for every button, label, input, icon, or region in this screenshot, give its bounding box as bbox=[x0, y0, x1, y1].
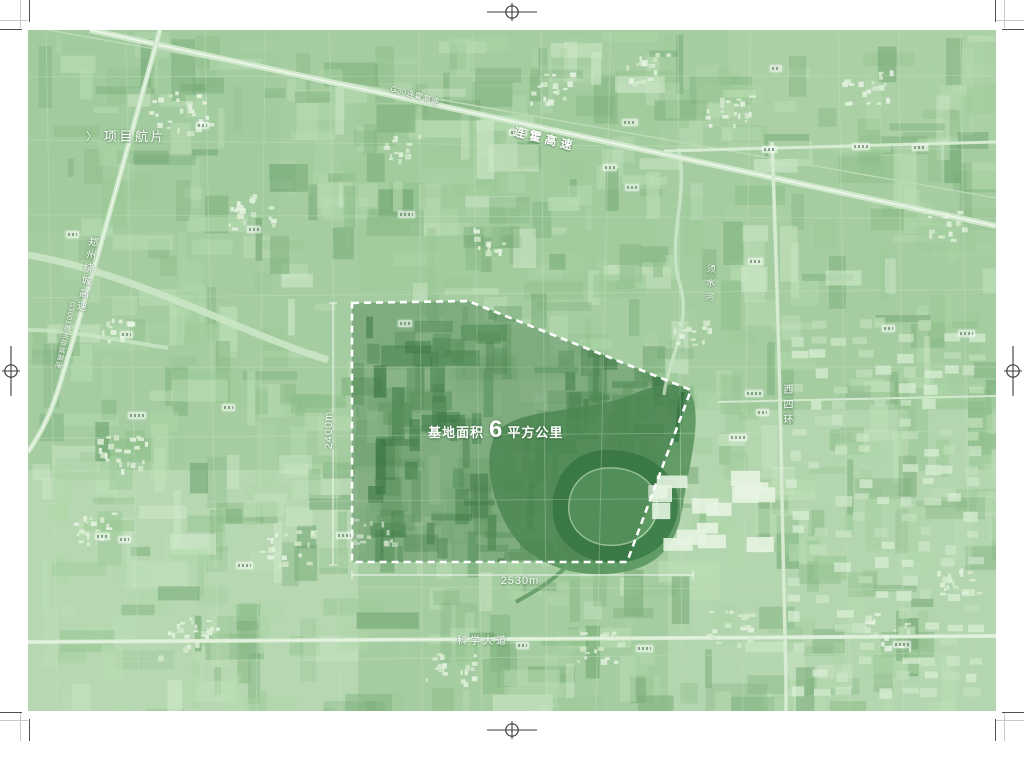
map-label-chip bbox=[247, 226, 261, 233]
map-label-chip bbox=[66, 231, 79, 238]
map-label-chip bbox=[118, 536, 131, 543]
map-label-chip bbox=[398, 211, 415, 218]
dimension-width-label: 2530m bbox=[490, 575, 550, 587]
map-label-chip bbox=[622, 119, 638, 126]
map-label-chip bbox=[762, 146, 777, 153]
map-label-chip bbox=[745, 390, 763, 397]
aerial-map: 〉 项目航片 基地面积 6 平方公里 2400m 2530m 连霍高速 G30连… bbox=[28, 30, 996, 711]
area-label-unit: 平方公里 bbox=[507, 424, 563, 442]
page-title-text: 项目航片 bbox=[104, 126, 166, 145]
map-label-chip bbox=[893, 641, 911, 648]
dimension-height-label: 2400m bbox=[323, 400, 335, 460]
map-label-chip bbox=[236, 562, 253, 569]
map-label-chip bbox=[603, 164, 617, 171]
site-area-label: 基地面积 6 平方公里 bbox=[428, 418, 563, 442]
map-label-chip bbox=[756, 409, 769, 416]
map-label-chip bbox=[222, 404, 235, 411]
river-label-xushui: 须水河 bbox=[703, 264, 718, 307]
map-label-chip bbox=[636, 645, 653, 652]
map-label-chip bbox=[729, 434, 747, 441]
map-label-chip bbox=[770, 65, 782, 72]
chevron-right-icon: 〉 bbox=[86, 128, 97, 144]
map-label-chip bbox=[128, 412, 146, 419]
road-label-science-avenue: 科学大道 bbox=[413, 632, 553, 647]
map-label-chip bbox=[748, 258, 763, 265]
map-label-chip bbox=[95, 533, 110, 540]
map-label-chip bbox=[852, 143, 870, 150]
map-label-chip bbox=[398, 320, 412, 327]
area-value: 6 bbox=[489, 418, 502, 442]
map-label-chip bbox=[625, 184, 639, 191]
map-label-chip bbox=[336, 532, 353, 539]
map-label-chip bbox=[912, 144, 928, 151]
map-label-chip bbox=[958, 330, 975, 337]
map-label-chip bbox=[196, 122, 209, 129]
map-label-chip bbox=[882, 325, 895, 332]
page-title: 〉 项目航片 bbox=[86, 126, 166, 145]
road-label-west-fourth-ring: 西四环 bbox=[779, 384, 794, 429]
map-label-chip bbox=[120, 331, 133, 338]
area-label-prefix: 基地面积 bbox=[428, 424, 484, 442]
